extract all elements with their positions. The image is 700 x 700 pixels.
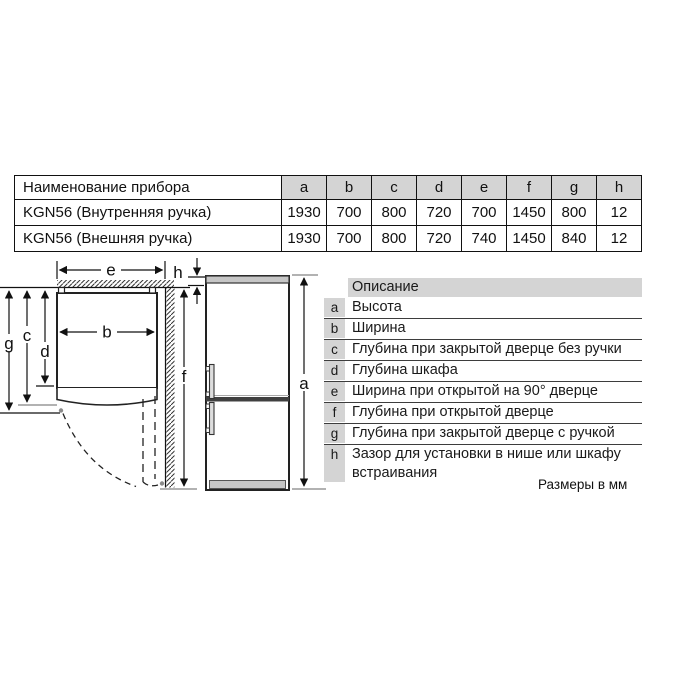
spec-value: 1930 [282,200,327,226]
spec-model-name: KGN56 (Внутренняя ручка) [15,200,282,226]
legend-text: Глубина при открытой дверце [348,403,642,423]
legend-row-b: b Ширина [324,319,642,340]
spec-value: 800 [552,200,597,226]
dim-label-b: b [102,323,111,342]
spec-value: 720 [417,226,462,252]
dim-label-h: h [173,263,182,282]
legend-text: Глубина при закрытой дверце с ручкой [348,424,642,444]
spec-dim-header-f: f [507,176,552,200]
door-closed-arc [57,388,157,405]
dim-a: a [292,275,326,489]
fridge-front-view [206,276,289,490]
door-swing-arc [63,414,136,487]
legend-key: h [324,445,345,482]
dim-c: c [19,291,36,402]
spec-row-inner-handle: KGN56 (Внутренняя ручка) 1930 700 800 72… [15,200,642,226]
spec-value: 700 [462,200,507,226]
spec-dim-header-g: g [552,176,597,200]
spec-dim-header-d: d [417,176,462,200]
spec-header-row: Наименование прибора a b c d e f g h [15,176,642,200]
dim-g: g [1,291,18,410]
legend-table: Описание a Высота b Ширина c Глубина при… [324,278,642,483]
spec-value: 12 [597,200,642,226]
legend-key: e [324,382,345,401]
spec-dim-header-h: h [597,176,642,200]
spec-value: 12 [597,226,642,252]
dim-label-c: c [23,326,32,345]
spec-row-outer-handle: KGN56 (Внешняя ручка) 1930 700 800 720 7… [15,226,642,252]
legend-text: Ширина при открытой на 90° дверце [348,382,642,402]
top-view-group: e b g c [0,258,206,489]
legend-text: Глубина шкафа [348,361,642,381]
page-canvas: Наименование прибора a b c d e f g h KGN… [0,0,700,700]
spec-name-header: Наименование прибора [15,176,282,200]
dim-label-d: d [40,342,49,361]
dim-label-e: e [106,261,115,280]
legend-header-key-spacer [324,278,345,296]
hinge-left [59,288,65,294]
spec-model-name: KGN56 (Внешняя ручка) [15,226,282,252]
legend-header: Описание [348,278,642,297]
spec-value: 720 [417,200,462,226]
spec-value: 1930 [282,226,327,252]
open-door-dashed [143,396,164,486]
legend-key: d [324,361,345,380]
hinge-right [150,288,156,294]
spec-value: 1450 [507,200,552,226]
legend-row-g: g Глубина при закрытой дверце с ручкой [324,424,642,445]
dimensions-unit-note: Размеры в мм [538,477,627,492]
dim-d: d [36,291,54,386]
legend-text: Ширина [348,319,642,339]
legend-row-e: e Ширина при открытой на 90° дверце [324,382,642,403]
spec-value: 840 [552,226,597,252]
legend-key: a [324,298,345,317]
legend-text: Высота [348,298,642,318]
fridge-plinth [210,481,286,489]
spec-dim-header-c: c [372,176,417,200]
legend-header-row: Описание [324,278,642,297]
legend-row-c: c Глубина при закрытой дверце без ручки [324,340,642,361]
dim-label-f: f [182,367,187,386]
spec-value: 700 [327,226,372,252]
legend-key: f [324,403,345,422]
wall-hatch-vertical [166,288,175,488]
spec-table: Наименование прибора a b c d e f g h KGN… [14,175,642,252]
dim-f: f [176,290,192,486]
door-divider [206,397,289,402]
spec-dim-header-a: a [282,176,327,200]
legend-key: c [324,340,345,359]
dim-e: e [57,261,165,280]
dim-label-g: g [4,334,13,353]
dimensions-diagram: e b g c [0,252,335,504]
front-view-group: a [206,275,326,490]
door-handle-dot [59,408,63,412]
legend-text: Глубина при закрытой дверце без ручки [348,340,642,360]
spec-dim-header-b: b [327,176,372,200]
spec-value: 740 [462,226,507,252]
spec-value: 700 [327,200,372,226]
legend-key: g [324,424,345,443]
spec-value: 800 [372,226,417,252]
legend-row-d: d Глубина шкафа [324,361,642,382]
spec-dim-header-e: e [462,176,507,200]
fridge-top-band [206,276,289,283]
spec-value: 800 [372,200,417,226]
dim-label-a: a [299,374,309,393]
legend-row-a: a Высота [324,298,642,319]
wall-hatch-horizontal [57,280,174,288]
spec-value: 1450 [507,226,552,252]
dim-h: h [173,258,206,304]
legend-key: b [324,319,345,338]
legend-row-f: f Глубина при открытой дверце [324,403,642,424]
